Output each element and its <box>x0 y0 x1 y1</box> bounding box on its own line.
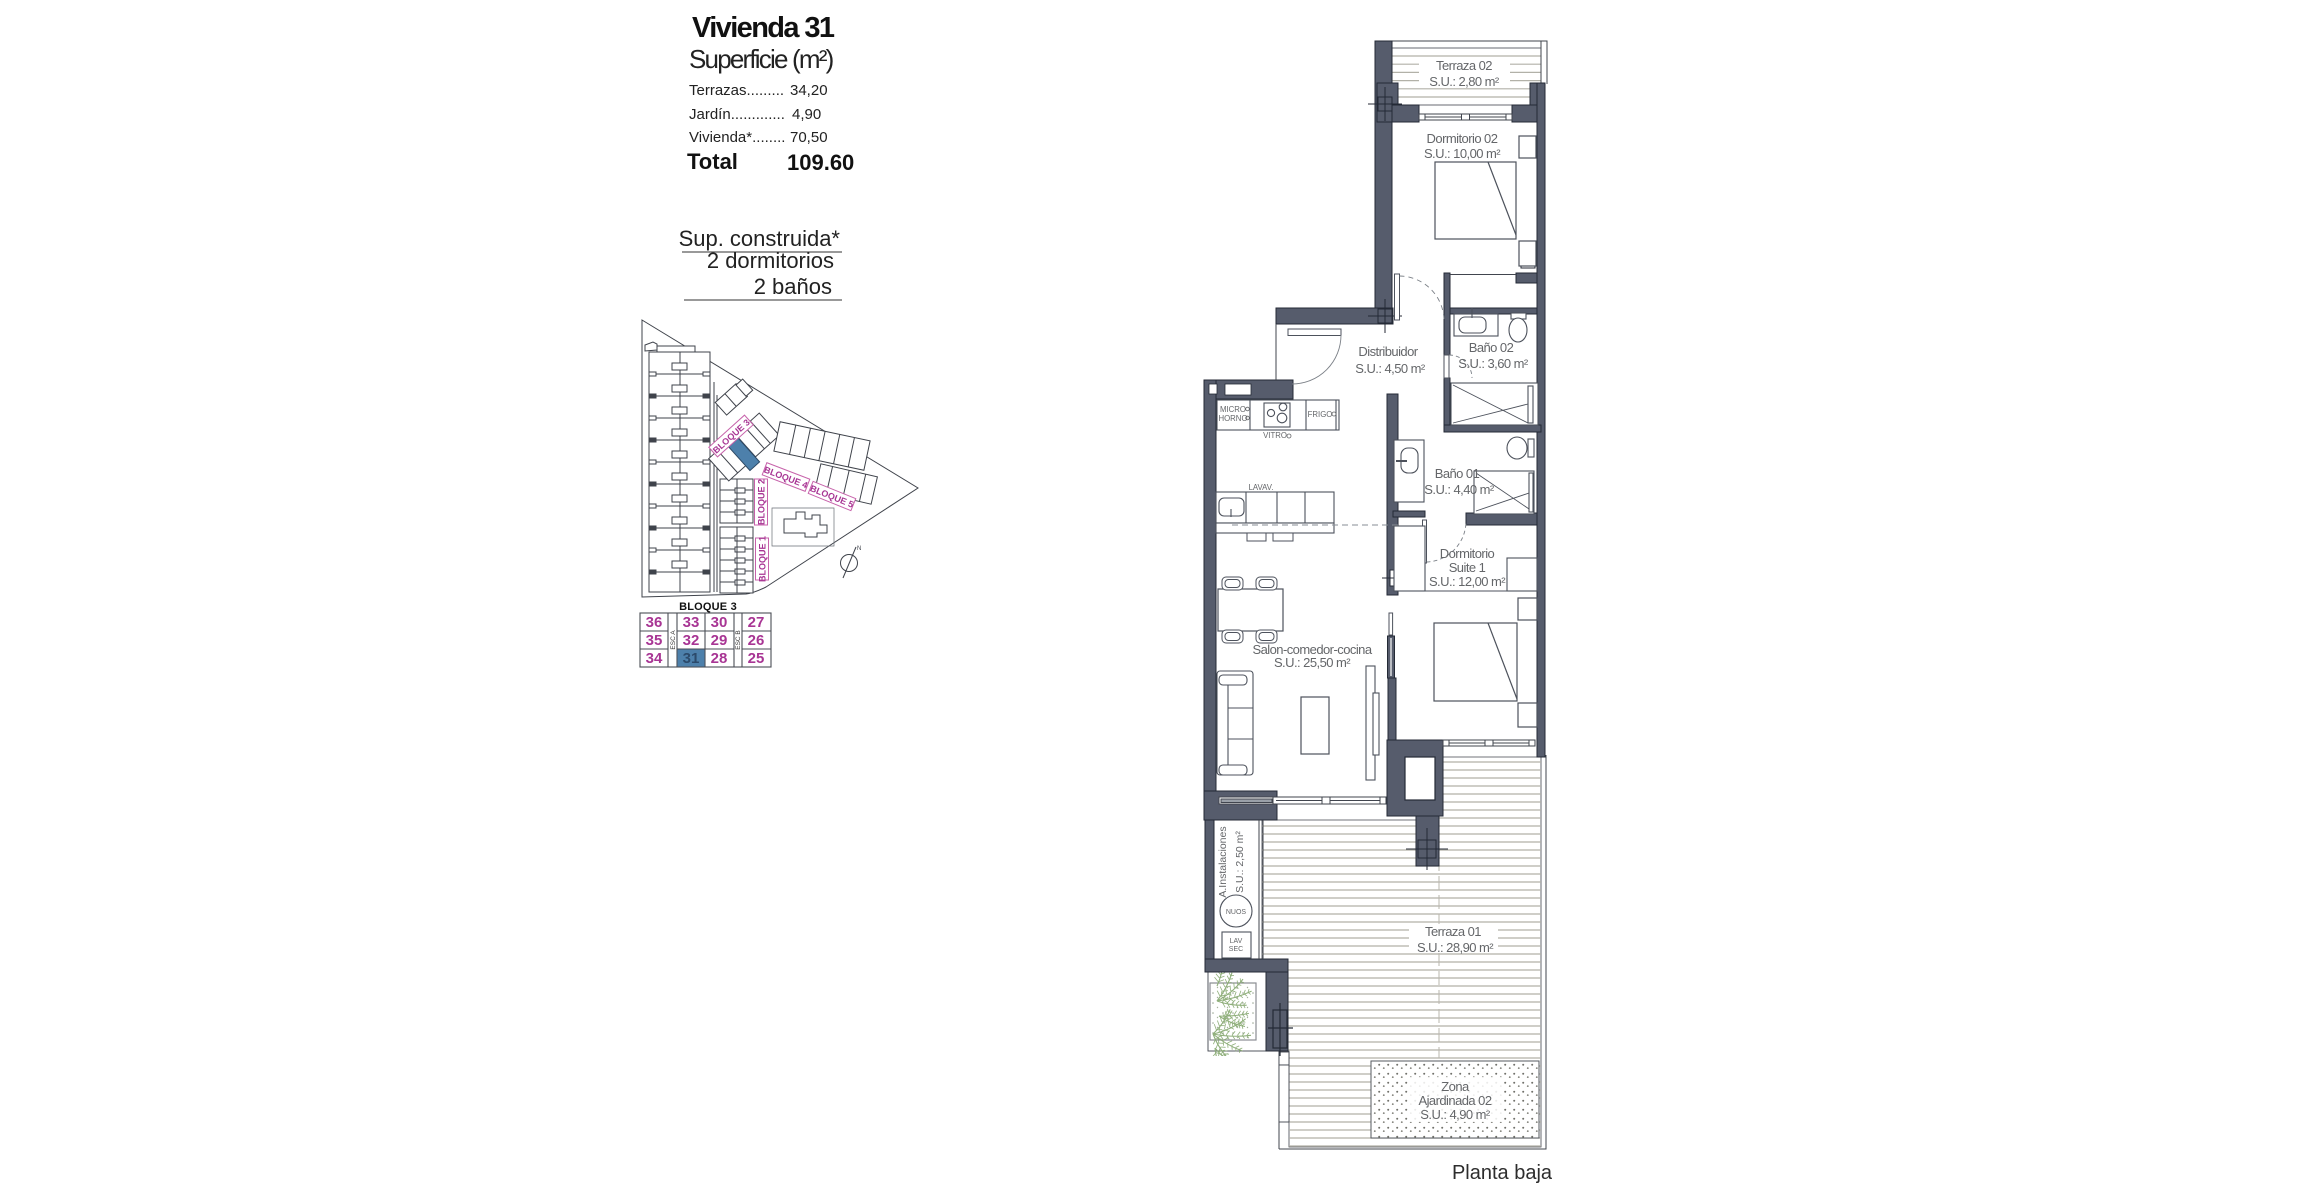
svg-text:S.U.: 4,40 m²: S.U.: 4,40 m² <box>1424 482 1495 497</box>
svg-text:S.U.: 2,50 m²: S.U.: 2,50 m² <box>1234 831 1246 893</box>
svg-text:FRIGO: FRIGO <box>1308 410 1333 419</box>
svg-text:NUOS: NUOS <box>1226 909 1247 916</box>
svg-text:25: 25 <box>748 650 765 667</box>
svg-text:36: 36 <box>646 614 663 631</box>
svg-text:2 baños: 2 baños <box>754 274 832 299</box>
svg-text:S.U.: 12,00 m²: S.U.: 12,00 m² <box>1429 574 1506 589</box>
svg-text:2 dormitorios: 2 dormitorios <box>707 248 834 273</box>
svg-text:Planta baja: Planta baja <box>1452 1162 1553 1184</box>
svg-text:ESC A: ESC A <box>670 630 677 650</box>
svg-text:LAV: LAV <box>1230 938 1243 945</box>
svg-text:Zona: Zona <box>1441 1079 1470 1094</box>
svg-text:34,20: 34,20 <box>790 82 828 99</box>
svg-text:Ajardinada 02: Ajardinada 02 <box>1418 1093 1491 1108</box>
svg-text:LAVAV.: LAVAV. <box>1249 483 1274 492</box>
svg-text:Terraza 01: Terraza 01 <box>1425 924 1481 939</box>
svg-text:S.U.: 25,50 m²: S.U.: 25,50 m² <box>1274 655 1351 670</box>
svg-text:S.U.: 4,50 m²: S.U.: 4,50 m² <box>1355 361 1426 376</box>
svg-text:Total: Total <box>687 149 738 174</box>
svg-text:Jardín.............: Jardín............. <box>689 106 785 123</box>
svg-text:BLOQUE 1: BLOQUE 1 <box>758 536 768 582</box>
svg-text:HORNO: HORNO <box>1218 414 1247 423</box>
svg-text:70,50: 70,50 <box>790 129 828 146</box>
svg-text:30: 30 <box>711 614 728 631</box>
svg-text:29: 29 <box>711 632 728 649</box>
svg-text:S.U.: 2,80 m²: S.U.: 2,80 m² <box>1429 74 1500 89</box>
svg-text:28: 28 <box>711 650 728 667</box>
svg-text:35: 35 <box>646 632 663 649</box>
svg-text:Dormitorio: Dormitorio <box>1440 546 1495 561</box>
svg-text:S.U.: 28,90 m²: S.U.: 28,90 m² <box>1417 940 1494 955</box>
svg-text:BLOQUE 3: BLOQUE 3 <box>679 601 737 613</box>
svg-text:4,90: 4,90 <box>792 106 821 123</box>
svg-text:S.U.: 4,90 m²: S.U.: 4,90 m² <box>1420 1107 1491 1122</box>
svg-text:31: 31 <box>683 650 700 667</box>
svg-text:S.U.: 10,00 m²: S.U.: 10,00 m² <box>1424 146 1501 161</box>
svg-text:Superficie (m²): Superficie (m²) <box>689 44 834 74</box>
svg-text:MICRO: MICRO <box>1220 405 1246 414</box>
svg-text:S.U.: 3,60 m²: S.U.: 3,60 m² <box>1458 356 1529 371</box>
svg-text:109.60: 109.60 <box>787 150 854 175</box>
svg-text:Vivienda*........: Vivienda*........ <box>689 129 785 146</box>
svg-text:32: 32 <box>683 632 700 649</box>
svg-text:N: N <box>857 546 861 552</box>
svg-text:27: 27 <box>748 614 765 631</box>
svg-text:Baño 02: Baño 02 <box>1469 340 1514 355</box>
svg-text:34: 34 <box>646 650 663 667</box>
svg-text:BLOQUE 2: BLOQUE 2 <box>757 479 767 525</box>
svg-text:Terraza 02: Terraza 02 <box>1436 58 1492 73</box>
svg-text:VITRO: VITRO <box>1263 431 1287 440</box>
svg-text:Terrazas.........: Terrazas......... <box>689 82 784 99</box>
svg-text:Suite 1: Suite 1 <box>1449 560 1486 575</box>
svg-text:26: 26 <box>748 632 765 649</box>
svg-text:Distribuidor: Distribuidor <box>1358 344 1418 359</box>
svg-text:Dormitorio 02: Dormitorio 02 <box>1427 131 1498 146</box>
svg-text:ESC B: ESC B <box>735 630 742 650</box>
svg-text:Vivienda 31: Vivienda 31 <box>692 12 835 44</box>
svg-text:Baño 01: Baño 01 <box>1435 466 1480 481</box>
svg-text:33: 33 <box>683 614 700 631</box>
svg-text:A.Instalaciones: A.Instalaciones <box>1217 826 1229 897</box>
svg-text:SEC: SEC <box>1229 946 1243 953</box>
